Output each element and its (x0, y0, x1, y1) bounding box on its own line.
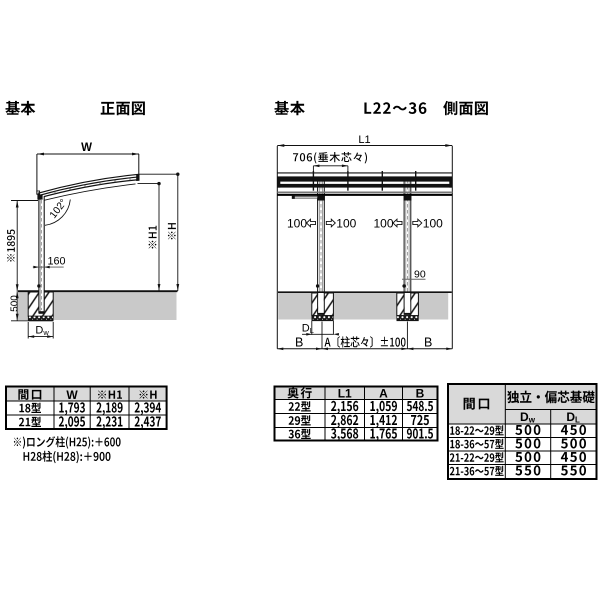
svg-text:500: 500 (10, 295, 21, 312)
svg-text:B: B (424, 335, 432, 349)
svg-text:B: B (416, 386, 425, 400)
svg-text:100: 100 (373, 216, 393, 230)
svg-text:100: 100 (423, 216, 443, 230)
svg-text:A: A (379, 386, 388, 400)
svg-text:W: W (81, 142, 92, 154)
svg-text:L1: L1 (338, 386, 352, 400)
svg-text:100: 100 (336, 216, 356, 230)
svg-text:W: W (66, 388, 78, 402)
svg-text:L1: L1 (358, 134, 370, 146)
svg-text:160: 160 (48, 256, 66, 268)
svg-text:90: 90 (414, 269, 426, 281)
svg-text:100: 100 (287, 216, 307, 230)
svg-text:B: B (295, 335, 303, 349)
